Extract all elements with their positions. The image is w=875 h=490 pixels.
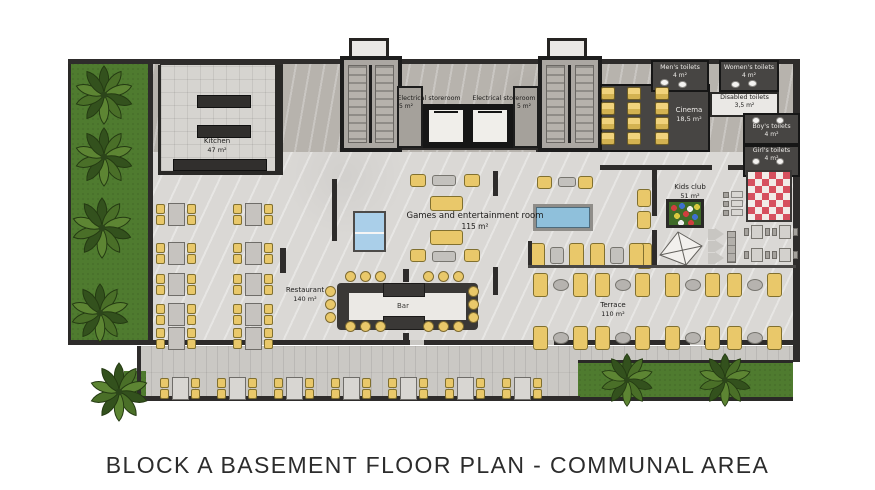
chair	[264, 339, 273, 349]
kitchen-counter	[173, 159, 267, 171]
side-table	[553, 279, 569, 291]
chair	[793, 251, 798, 259]
palm-tree-icon	[696, 352, 754, 408]
armchair	[637, 211, 651, 229]
kids-table-set	[744, 248, 770, 262]
table	[457, 377, 474, 400]
chair	[156, 215, 165, 225]
bar-stool	[468, 299, 479, 310]
chair	[156, 339, 165, 349]
chair	[772, 228, 777, 236]
sofa	[665, 273, 680, 297]
chair	[233, 204, 242, 214]
games-room-label: Games and entertainment room 115 m²	[400, 211, 550, 232]
armchair	[464, 174, 480, 187]
sofa	[533, 326, 548, 350]
cinema-seat	[655, 117, 669, 130]
chair	[362, 378, 371, 388]
toilet-fixture	[731, 81, 740, 88]
door-opening	[410, 340, 424, 345]
chair	[362, 389, 371, 399]
womens-toilets-label: Women's toilets 4 m²	[719, 64, 779, 80]
bar-stool	[453, 321, 464, 332]
chair	[274, 389, 283, 399]
bar-notch	[383, 283, 425, 297]
room-area: 3,5 m²	[710, 102, 779, 110]
room-name: Boy's toilets	[743, 123, 800, 131]
bar-stool	[325, 312, 336, 323]
palm-tree-icon	[72, 64, 136, 126]
kids-table-set	[772, 248, 798, 262]
cinema-seat	[655, 87, 669, 100]
sofa	[767, 326, 782, 350]
chair	[187, 243, 196, 253]
chair	[187, 204, 196, 214]
dining-table-set	[156, 242, 197, 265]
room-name: Bar	[383, 302, 423, 311]
room-name: Terrace	[583, 301, 643, 310]
toilet-fixture	[660, 79, 669, 86]
sofa	[705, 326, 720, 350]
chair	[264, 254, 273, 264]
sofa	[727, 326, 742, 350]
bar-stool	[423, 321, 434, 332]
stair-rail	[568, 65, 571, 143]
coffee-table	[432, 251, 456, 262]
chair	[264, 328, 273, 338]
dining-table-set	[233, 273, 274, 296]
dining-table-set	[156, 273, 197, 296]
chair	[156, 304, 165, 314]
chair	[264, 315, 273, 325]
wall-stub	[332, 179, 337, 241]
room-area: 4 m²	[652, 72, 708, 80]
room-name: Cinema	[668, 106, 710, 115]
electrical-storeroom-2-label: Electrical storeroom 5 m²	[471, 95, 537, 111]
chair	[187, 215, 196, 225]
coffee-table	[610, 247, 624, 264]
bar-stool	[345, 271, 356, 282]
chair	[156, 274, 165, 284]
room-area: 5 m²	[396, 103, 462, 111]
palm-tree-icon	[598, 352, 656, 408]
play-tent-icon	[658, 231, 704, 266]
chair	[233, 339, 242, 349]
bar-stool	[325, 286, 336, 297]
wall-stub	[403, 269, 409, 282]
elevator	[471, 108, 509, 144]
sofa	[595, 326, 610, 350]
palm-tree-icon	[72, 126, 136, 188]
dining-table-set	[233, 203, 274, 226]
chair	[233, 285, 242, 295]
side-table	[615, 279, 631, 291]
bar-stool	[325, 299, 336, 310]
chair	[533, 378, 542, 388]
chair	[502, 389, 511, 399]
bar-stool	[453, 271, 464, 282]
table	[245, 303, 262, 326]
chair	[419, 378, 428, 388]
ball-pit	[666, 199, 704, 228]
sofa	[430, 196, 463, 211]
arrow-sign-icon	[708, 241, 724, 252]
chair	[533, 389, 542, 399]
room-area: 5 m²	[471, 103, 537, 111]
chair	[217, 378, 226, 388]
sofa	[635, 326, 650, 350]
chair	[388, 389, 397, 399]
chair	[765, 251, 770, 259]
side-table	[553, 332, 569, 344]
kitchen-label: Kitchen 47 m²	[177, 137, 257, 155]
armchair	[410, 249, 426, 262]
room-name: Kids club	[660, 183, 720, 192]
side-table	[685, 279, 701, 291]
cinema-seat	[601, 132, 615, 145]
side-table	[747, 279, 763, 291]
dining-table-set	[445, 377, 486, 400]
table	[514, 377, 531, 400]
mens-toilets-label: Men's toilets 4 m²	[652, 64, 708, 80]
room-area: 4 m²	[743, 131, 800, 139]
armchair	[637, 189, 651, 207]
chair	[156, 315, 165, 325]
cinema-seat	[627, 87, 641, 100]
kids-desk	[731, 209, 743, 216]
wall-kidsclub-left	[652, 166, 657, 216]
bar-stool	[423, 271, 434, 282]
chair	[264, 215, 273, 225]
bar-stool	[438, 271, 449, 282]
kitchen-counter	[197, 95, 251, 108]
chair	[187, 304, 196, 314]
chair	[233, 304, 242, 314]
toilet-fixture	[748, 80, 757, 87]
arrow-sign-icon	[708, 229, 724, 240]
kids-club-label: Kids club 51 m²	[660, 183, 720, 201]
kids-shelf	[727, 231, 736, 263]
room-name: Disabled toilets	[710, 94, 779, 102]
chair	[156, 285, 165, 295]
room-name: Games and entertainment room	[400, 211, 550, 222]
table	[168, 203, 185, 226]
chair	[187, 315, 196, 325]
stairwell	[538, 56, 602, 152]
cinema-label: Cinema 18,5 m²	[668, 106, 710, 124]
chair	[264, 243, 273, 253]
stair-rail	[369, 65, 372, 143]
table	[168, 273, 185, 296]
table	[245, 203, 262, 226]
chair	[187, 285, 196, 295]
chair	[233, 215, 242, 225]
chair	[156, 243, 165, 253]
bar-stool	[468, 286, 479, 297]
palm-tree-icon	[66, 282, 134, 344]
toilet-fixture	[752, 158, 760, 165]
room-area: 115 m²	[400, 222, 550, 232]
armchair	[578, 176, 593, 189]
wall-right	[793, 59, 800, 362]
stair-flight	[375, 65, 394, 143]
dining-table-set	[156, 203, 197, 226]
cinema-seat	[627, 117, 641, 130]
room-area: 47 m²	[177, 146, 257, 154]
kids-table-set	[744, 225, 770, 239]
toilet-fixture	[776, 158, 784, 165]
table	[168, 327, 185, 350]
table	[245, 242, 262, 265]
chair	[233, 274, 242, 284]
coffee-table	[432, 175, 456, 186]
chair	[305, 378, 314, 388]
wall-stub	[280, 248, 286, 273]
side-table	[615, 332, 631, 344]
table	[751, 248, 763, 262]
kids-desk	[731, 200, 743, 207]
room-name: Electrical storeroom	[396, 95, 462, 103]
room-area: 18,5 m²	[668, 115, 710, 123]
kids-desk	[731, 191, 743, 198]
chair	[248, 378, 257, 388]
plan-title: BLOCK A BASEMENT FLOOR PLAN - COMMUNAL A…	[0, 452, 875, 479]
chair	[191, 378, 200, 388]
dining-table-set	[233, 303, 274, 326]
arrow-sign-icon	[708, 253, 724, 264]
room-name: Girl's toilets	[743, 147, 800, 155]
armchair	[537, 176, 552, 189]
wall-kidsclub-left	[652, 230, 657, 268]
kids-play-mat	[746, 170, 792, 222]
bar-stool	[345, 321, 356, 332]
chair	[264, 304, 273, 314]
chair	[331, 389, 340, 399]
room-name: Women's toilets	[719, 64, 779, 72]
chair	[331, 378, 340, 388]
sofa	[767, 273, 782, 297]
sofa	[705, 273, 720, 297]
dining-table-set	[160, 377, 201, 400]
table	[229, 377, 246, 400]
sofa	[665, 326, 680, 350]
chair	[744, 251, 749, 259]
room-name: Kitchen	[177, 137, 257, 146]
room-area: 110 m²	[583, 310, 643, 318]
chair	[187, 328, 196, 338]
table	[172, 377, 189, 400]
cinema-seat	[601, 102, 615, 115]
chair	[419, 389, 428, 399]
sofa	[595, 273, 610, 297]
room-name: Men's toilets	[652, 64, 708, 72]
side-table	[747, 332, 763, 344]
room-area: 4 m²	[719, 72, 779, 80]
chair	[744, 228, 749, 236]
disabled-toilets-label: Disabled toilets 3,5 m²	[710, 94, 779, 110]
chair	[187, 274, 196, 284]
toilet-fixture	[752, 117, 760, 124]
cinema-seat	[655, 132, 669, 145]
sofa	[727, 273, 742, 297]
toilet-fixture	[678, 81, 687, 88]
bar-stool	[375, 271, 386, 282]
table	[245, 273, 262, 296]
chair	[502, 378, 511, 388]
armchair	[464, 249, 480, 262]
chair	[233, 243, 242, 253]
dining-table-set	[156, 327, 197, 350]
floor-plan: Kitchen 47 m² Electrical storeroom 5 m² …	[0, 0, 875, 450]
page: { "title": "BLOCK A BASEMENT FLOOR PLAN …	[0, 0, 875, 490]
cinema-seat	[627, 132, 641, 145]
table	[168, 242, 185, 265]
sofa	[635, 273, 650, 297]
bar-stool	[468, 312, 479, 323]
stair-flight	[348, 65, 367, 143]
bar-stool	[360, 271, 371, 282]
kitchen-room	[158, 65, 283, 175]
palm-tree-icon	[88, 360, 150, 424]
dining-table-set	[233, 242, 274, 265]
toilet-fixture	[776, 117, 784, 124]
table	[168, 303, 185, 326]
chair	[445, 378, 454, 388]
elevator	[427, 108, 465, 144]
chair	[476, 389, 485, 399]
sofa	[430, 230, 463, 245]
kids-stool	[723, 210, 729, 216]
cinema-seat	[627, 102, 641, 115]
wall-left	[148, 59, 153, 345]
bar-stool	[438, 321, 449, 332]
chair	[160, 389, 169, 399]
chair	[264, 204, 273, 214]
chair	[233, 315, 242, 325]
table	[245, 327, 262, 350]
coffee-table	[550, 247, 564, 264]
chair	[772, 251, 777, 259]
kids-stool	[723, 201, 729, 207]
chair	[248, 389, 257, 399]
kids-stool	[723, 192, 729, 198]
stair-flight	[575, 65, 594, 143]
chair	[765, 228, 770, 236]
dining-table-set	[156, 303, 197, 326]
chair	[187, 339, 196, 349]
dining-table-set	[217, 377, 258, 400]
armchair	[410, 174, 426, 187]
terrace-label: Terrace 110 m²	[583, 301, 643, 319]
chair	[156, 254, 165, 264]
table	[286, 377, 303, 400]
stairwell	[340, 56, 402, 152]
table	[400, 377, 417, 400]
cinema-seat	[655, 102, 669, 115]
chair	[191, 389, 200, 399]
chair	[445, 389, 454, 399]
chair	[233, 328, 242, 338]
table	[779, 225, 791, 239]
dining-table-set	[502, 377, 543, 400]
chair	[388, 378, 397, 388]
chair	[793, 228, 798, 236]
boys-toilets-label: Boy's toilets 4 m²	[743, 123, 800, 139]
sofa	[573, 326, 588, 350]
side-table	[685, 332, 701, 344]
wall-stub	[493, 171, 498, 196]
dining-table-set	[388, 377, 429, 400]
wall-terrace	[528, 241, 532, 268]
wall-stub	[493, 267, 498, 295]
electrical-storeroom-1-label: Electrical storeroom 5 m²	[396, 95, 462, 111]
chair	[187, 254, 196, 264]
terrace-rail	[528, 265, 796, 268]
cinema-seat	[601, 117, 615, 130]
chair	[274, 378, 283, 388]
kids-table-set	[772, 225, 798, 239]
ping-pong-table	[353, 211, 386, 252]
chair	[156, 328, 165, 338]
chair	[233, 254, 242, 264]
chair	[264, 274, 273, 284]
sofa	[573, 273, 588, 297]
room-name: Electrical storeroom	[471, 95, 537, 103]
chair	[160, 378, 169, 388]
dining-table-set	[274, 377, 315, 400]
bar-stool	[375, 321, 386, 332]
wall-stub	[403, 333, 409, 345]
table	[779, 248, 791, 262]
table	[751, 225, 763, 239]
chair	[156, 204, 165, 214]
bar-stool	[360, 321, 371, 332]
cinema-seat	[601, 87, 615, 100]
coffee-table	[558, 177, 576, 187]
chair	[264, 285, 273, 295]
palm-tree-icon	[68, 196, 136, 260]
table	[343, 377, 360, 400]
stair-flight	[546, 65, 565, 143]
chair	[305, 389, 314, 399]
bar-label: Bar	[383, 302, 423, 311]
dining-table-set	[233, 327, 274, 350]
chair	[217, 389, 226, 399]
dining-table-set	[331, 377, 372, 400]
bar-notch	[383, 316, 425, 330]
sofa	[533, 273, 548, 297]
chair	[476, 378, 485, 388]
